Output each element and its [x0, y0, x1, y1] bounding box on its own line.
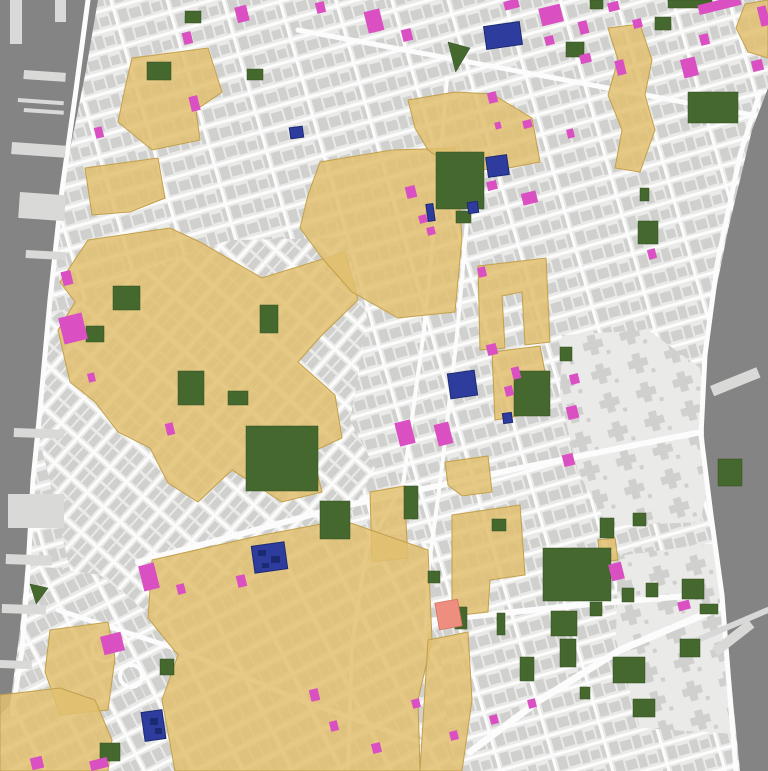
- park: [260, 305, 278, 333]
- park: [543, 548, 611, 601]
- special-district: [502, 412, 512, 423]
- special-district-building: [258, 550, 266, 556]
- park: [178, 371, 204, 405]
- park: [655, 17, 671, 30]
- special-district-building: [262, 563, 269, 568]
- special-district: [467, 201, 478, 213]
- historic-district: [0, 688, 112, 771]
- park: [622, 588, 634, 602]
- special-district: [486, 155, 510, 178]
- park: [560, 639, 576, 667]
- pier: [14, 428, 64, 439]
- special-district: [251, 542, 287, 573]
- park: [613, 657, 645, 683]
- park: [560, 347, 572, 361]
- park: [640, 188, 649, 201]
- pier: [6, 554, 52, 566]
- park: [247, 69, 263, 80]
- park: [551, 611, 577, 636]
- park: [590, 602, 602, 616]
- pier: [55, 0, 66, 22]
- special-district: [289, 126, 303, 139]
- historic-district: [420, 632, 472, 771]
- park: [113, 286, 140, 310]
- pier: [0, 660, 32, 669]
- proposed-parcels-layer: [435, 599, 462, 630]
- park: [638, 221, 658, 244]
- park: [428, 571, 440, 583]
- pier: [18, 192, 66, 221]
- park: [520, 657, 534, 681]
- historic-district: [148, 520, 432, 771]
- special-district: [447, 370, 477, 399]
- park: [600, 518, 614, 538]
- park: [680, 639, 700, 657]
- park: [246, 426, 318, 491]
- pier: [10, 0, 22, 44]
- park: [633, 513, 646, 526]
- proposed-parcel: [435, 599, 462, 630]
- landmarks-map: [0, 0, 768, 771]
- park: [718, 459, 742, 486]
- special-district: [484, 22, 523, 50]
- park: [320, 501, 350, 539]
- special-district-building: [271, 556, 280, 563]
- park: [688, 92, 738, 123]
- park: [580, 687, 590, 699]
- park: [646, 583, 658, 597]
- special-district-building: [150, 718, 158, 725]
- special-district-building: [155, 728, 162, 734]
- pier: [8, 494, 64, 528]
- park: [682, 579, 704, 599]
- park: [86, 326, 104, 342]
- park: [436, 152, 484, 209]
- park: [185, 11, 201, 23]
- park: [566, 42, 584, 57]
- special-district: [141, 710, 166, 742]
- pier: [2, 604, 46, 615]
- park: [590, 0, 603, 9]
- park: [160, 659, 174, 675]
- park: [228, 391, 248, 405]
- park: [147, 62, 171, 80]
- park: [497, 613, 505, 635]
- park: [492, 519, 506, 531]
- map-canvas[interactable]: [0, 0, 768, 771]
- park: [404, 486, 418, 519]
- park: [633, 699, 655, 717]
- park: [700, 604, 718, 614]
